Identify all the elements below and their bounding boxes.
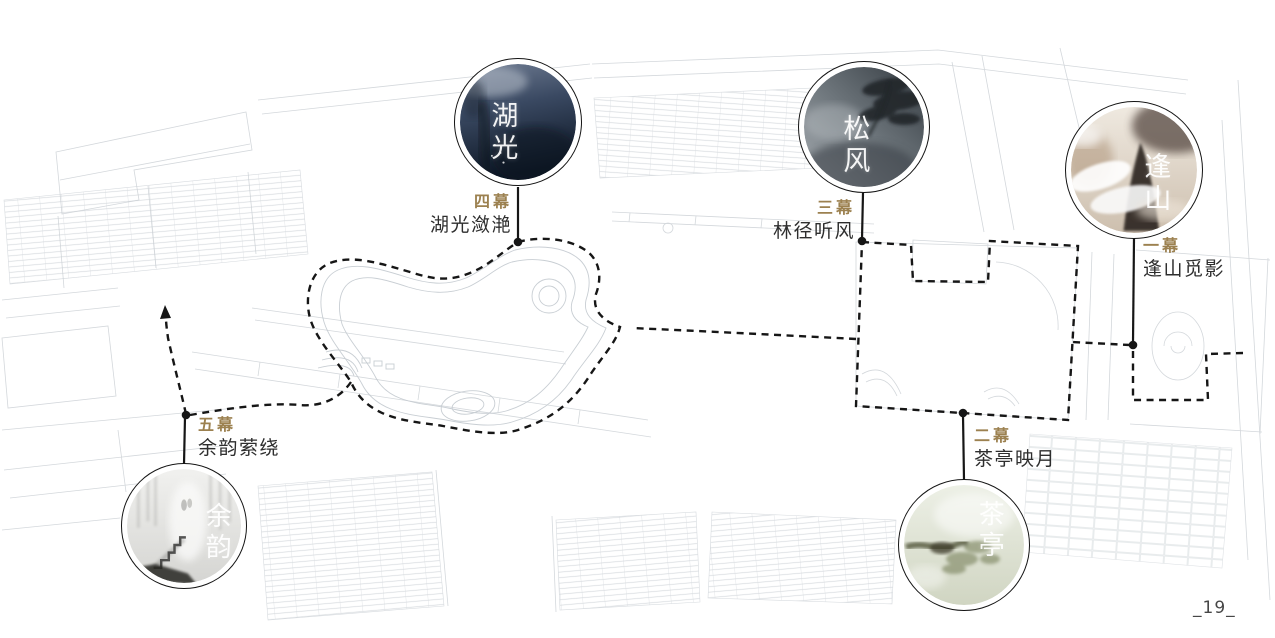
act-number-label: 二幕 — [974, 426, 1114, 445]
scene-circle-caption: 逢山 — [1140, 152, 1168, 216]
scene-label-act1: 一幕 逢山觅影 — [1143, 236, 1275, 281]
act-number-label: 三幕 — [735, 198, 855, 217]
misty-lake-photo — [460, 64, 576, 180]
act-number-label: 四幕 — [392, 192, 512, 211]
page-number: _19_ — [1193, 598, 1273, 618]
scene-label-act4: 四幕 湖光潋滟 — [392, 192, 512, 237]
tea-pavilion-pine-photo — [904, 485, 1024, 605]
scene-circle-caption: 余韵 — [202, 502, 229, 564]
scene-label-act3: 三幕 林径听风 — [735, 198, 855, 243]
scene-circle-caption: 湖光 — [487, 101, 515, 165]
scene-callout-act4: 湖光 — [454, 58, 582, 186]
act-number-label: 五幕 — [198, 415, 338, 434]
act-number-label: 一幕 — [1143, 236, 1275, 255]
route-stop-dots — [182, 237, 1138, 420]
route-end-arrow — [160, 305, 171, 319]
scene-callout-act2: 茶亭 — [898, 479, 1030, 611]
scene-name-label: 逢山觅影 — [1143, 258, 1275, 281]
scene-name-label: 林径听风 — [735, 220, 855, 243]
scene-circle-caption: 茶亭 — [975, 500, 1002, 562]
scene-label-act5: 五幕 余韵萦绕 — [198, 415, 338, 460]
scene-name-label: 湖光潋滟 — [392, 214, 512, 237]
scene-callout-act3: 松风 — [798, 61, 930, 193]
mountain-cloud-photo — [1071, 107, 1197, 233]
scene-name-label: 茶亭映月 — [974, 448, 1114, 471]
tour-route-path — [166, 239, 1243, 433]
scene-name-label: 余韵萦绕 — [198, 437, 338, 460]
scene-callout-act5: 余韵 — [121, 463, 247, 589]
scene-circle-caption: 松风 — [839, 114, 867, 178]
scene-callout-act1: 逢山 — [1065, 101, 1203, 239]
slide-canvas: 湖光 — [0, 0, 1275, 638]
scene-label-act2: 二幕 茶亭映月 — [974, 426, 1114, 471]
